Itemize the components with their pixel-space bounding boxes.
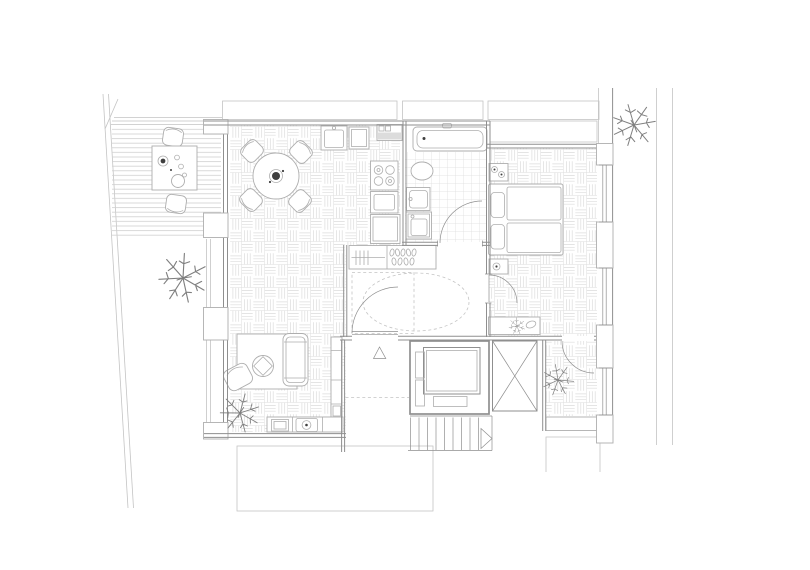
elevator-car (424, 348, 481, 395)
washing-machine (406, 212, 432, 239)
elevator-counterweight (434, 397, 468, 407)
roof-outline-c (488, 101, 599, 120)
coffee-table (253, 356, 274, 377)
bathroom-west-wall (403, 121, 406, 245)
loggia-bench (546, 417, 597, 431)
lower-right-outline (546, 437, 600, 472)
nightstand-top (489, 164, 508, 182)
floor-plan-canvas (0, 0, 810, 570)
terrace-chair-bottom (165, 194, 187, 215)
wall-pier (204, 120, 229, 135)
teapot-icon (172, 175, 185, 188)
tree-icon (154, 248, 213, 307)
wall-pier (204, 423, 229, 440)
double-bed (489, 184, 564, 255)
roof-outline-b (403, 101, 484, 120)
tree-icon (611, 103, 656, 147)
lower-unit-outline (237, 446, 433, 511)
wall-pier (204, 213, 229, 238)
entrance-door-swing (352, 287, 398, 333)
terrace-chair-top (162, 127, 184, 148)
bathroom-south-wall (402, 242, 490, 245)
toilet (411, 162, 433, 180)
loggia-parquet (546, 341, 597, 416)
wall-pier (204, 308, 229, 341)
site-boundary-right (657, 88, 673, 445)
nightstand-bottom (489, 259, 508, 274)
clearance-ellipse (363, 273, 469, 331)
floor-plan-drawing (0, 0, 810, 570)
shaft-cross-symbol (493, 341, 538, 411)
clearance-rect (352, 273, 414, 334)
cooktop-unit (371, 161, 399, 190)
stair-risers (411, 418, 479, 451)
circulation-core (342, 340, 537, 452)
table-centerpiece (272, 172, 280, 180)
wall-pier (597, 222, 614, 268)
bedroom-north-wall (487, 144, 613, 148)
kitchen-counter-unit (349, 127, 369, 149)
entrance-triangle-marker (374, 347, 386, 359)
north-wall (204, 121, 490, 125)
stair-direction-arrow (481, 429, 492, 449)
roof-outline-a (223, 101, 398, 120)
fridge-unit (371, 215, 401, 244)
drain-icon (423, 137, 426, 140)
loggia-west-wall (543, 340, 546, 431)
west-window-wall (224, 120, 228, 433)
hall-south-wall (340, 336, 613, 340)
wall-pier (597, 415, 614, 443)
bedroom-exterior-ledge (490, 121, 597, 142)
east-windows (603, 165, 606, 415)
wall-pier (597, 144, 614, 166)
wall-pier (597, 325, 614, 368)
